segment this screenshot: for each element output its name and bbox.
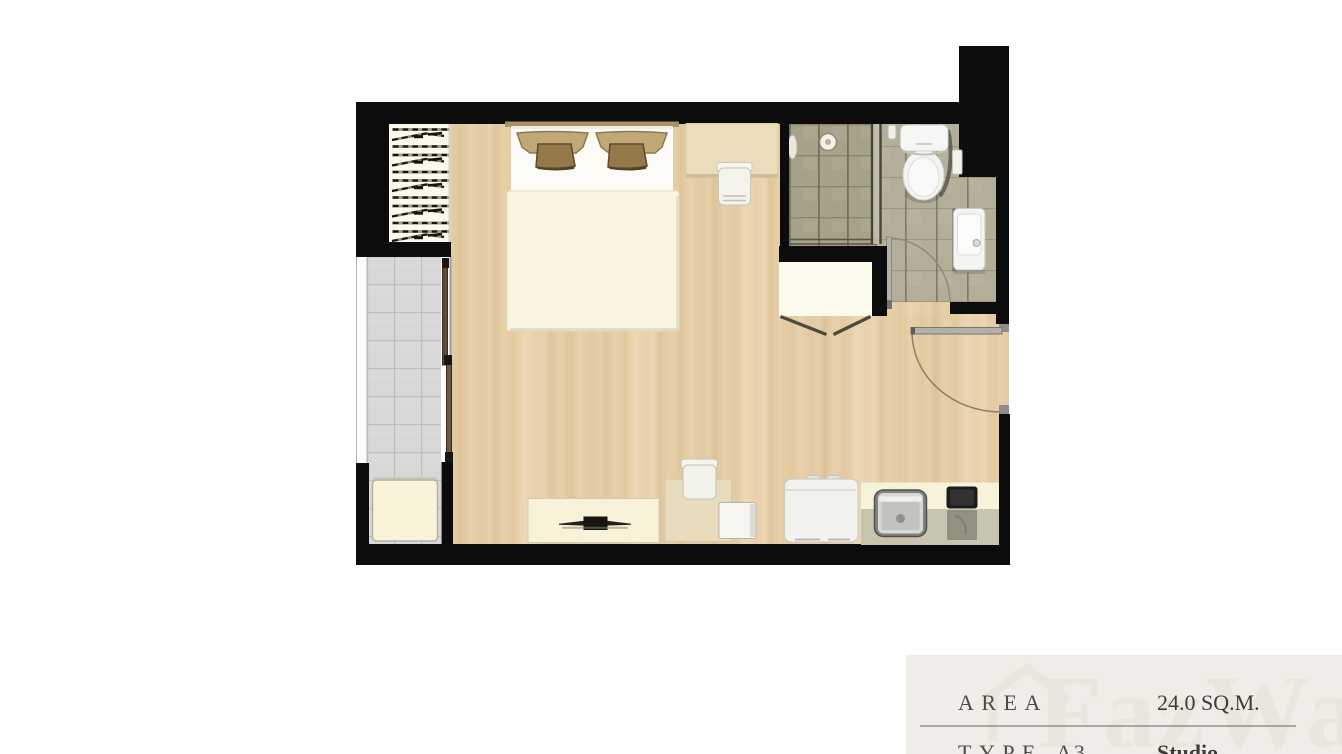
svg-text:A3: A3 xyxy=(1056,740,1087,754)
svg-text:TYPE: TYPE xyxy=(958,740,1043,754)
svg-text:24.0 SQ.M.: 24.0 SQ.M. xyxy=(1157,690,1260,715)
svg-text:AREA: AREA xyxy=(958,690,1048,715)
svg-text:Studio: Studio xyxy=(1157,740,1218,754)
